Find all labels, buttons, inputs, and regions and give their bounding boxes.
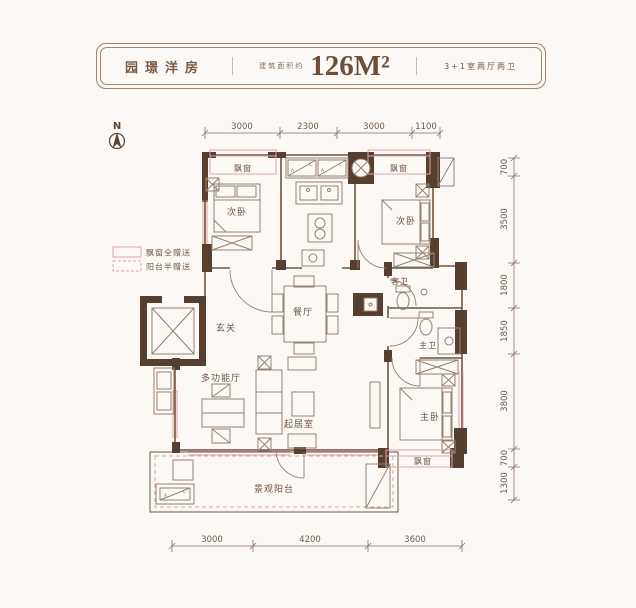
balcony-items bbox=[156, 460, 390, 508]
legend-bay-window: 飘窗全赠送 bbox=[146, 248, 191, 258]
dim-right-6: 1300 bbox=[500, 472, 510, 494]
legend-balcony: 阳台半赠送 bbox=[146, 262, 191, 272]
label-master: 主卧 bbox=[420, 411, 440, 423]
floor-plan: N 飘窗全赠送 阳台半赠送 bbox=[0, 0, 636, 608]
guest-bath-fixtures bbox=[396, 286, 427, 310]
label-guest-bath: 客卫 bbox=[391, 276, 409, 286]
dimension-labels-right: 700 3500 1800 1850 3800 700 1300 bbox=[500, 159, 510, 494]
north-arrow-icon: N bbox=[110, 121, 125, 149]
label-bay-right: 飘窗 bbox=[390, 163, 408, 173]
label-bedroom-right: 次卧 bbox=[396, 215, 416, 227]
label-foyer: 玄关 bbox=[216, 322, 236, 334]
label-multi: 多功能厅 bbox=[201, 372, 241, 384]
label-living: 起居室 bbox=[284, 418, 314, 430]
dim-right-1: 3500 bbox=[500, 208, 510, 230]
ac-letter-c: C bbox=[309, 162, 312, 168]
label-bay-left: 飘窗 bbox=[234, 163, 252, 173]
dim-top-2: 3000 bbox=[363, 122, 385, 132]
dim-right-3: 1850 bbox=[500, 320, 510, 342]
dim-right-4: 3800 bbox=[500, 390, 510, 412]
dim-bottom-0: 3000 bbox=[201, 535, 223, 545]
label-balcony: 景观阳台 bbox=[254, 483, 294, 495]
bed-left bbox=[206, 178, 260, 232]
multi-room-set bbox=[202, 384, 244, 443]
master-set bbox=[400, 360, 458, 453]
ac-letter-a: A bbox=[164, 493, 168, 499]
label-bedroom-left: 次卧 bbox=[227, 206, 247, 218]
dim-top-1: 2300 bbox=[297, 122, 319, 132]
dimension-labels-top: 3000 2300 3000 1100 bbox=[231, 122, 437, 132]
ac-letter-c: C bbox=[339, 162, 342, 168]
legend: 飘窗全赠送 阳台半赠送 bbox=[113, 247, 191, 272]
kitchen bbox=[286, 158, 370, 266]
living-set bbox=[256, 356, 380, 451]
dim-bottom-1: 4200 bbox=[299, 535, 321, 545]
dim-top-0: 3000 bbox=[231, 122, 253, 132]
dimension-labels-bottom: 3000 4200 3600 bbox=[201, 535, 426, 545]
wardrobe-left bbox=[212, 236, 252, 250]
label-master-bath: 主卫 bbox=[419, 340, 437, 350]
ac-letter-c: C bbox=[183, 489, 186, 495]
ac-letter-a: A bbox=[291, 168, 295, 174]
label-bay-master: 飘窗 bbox=[414, 456, 432, 466]
dim-right-0: 700 bbox=[500, 159, 510, 175]
north-label: N bbox=[113, 121, 121, 132]
wardrobe-right bbox=[394, 253, 434, 267]
dim-right-2: 1800 bbox=[500, 274, 510, 296]
dim-bottom-2: 3600 bbox=[404, 535, 426, 545]
dim-right-5: 700 bbox=[500, 450, 510, 466]
label-dining: 餐厅 bbox=[293, 306, 313, 318]
room-labels: 飘窗 飘窗 次卧 次卧 餐厅 玄关 客卫 主卫 多功能厅 起居室 主卧 飘窗 景… bbox=[201, 163, 440, 495]
dim-top-3: 1100 bbox=[415, 122, 437, 132]
ac-letter-a: A bbox=[321, 168, 325, 174]
